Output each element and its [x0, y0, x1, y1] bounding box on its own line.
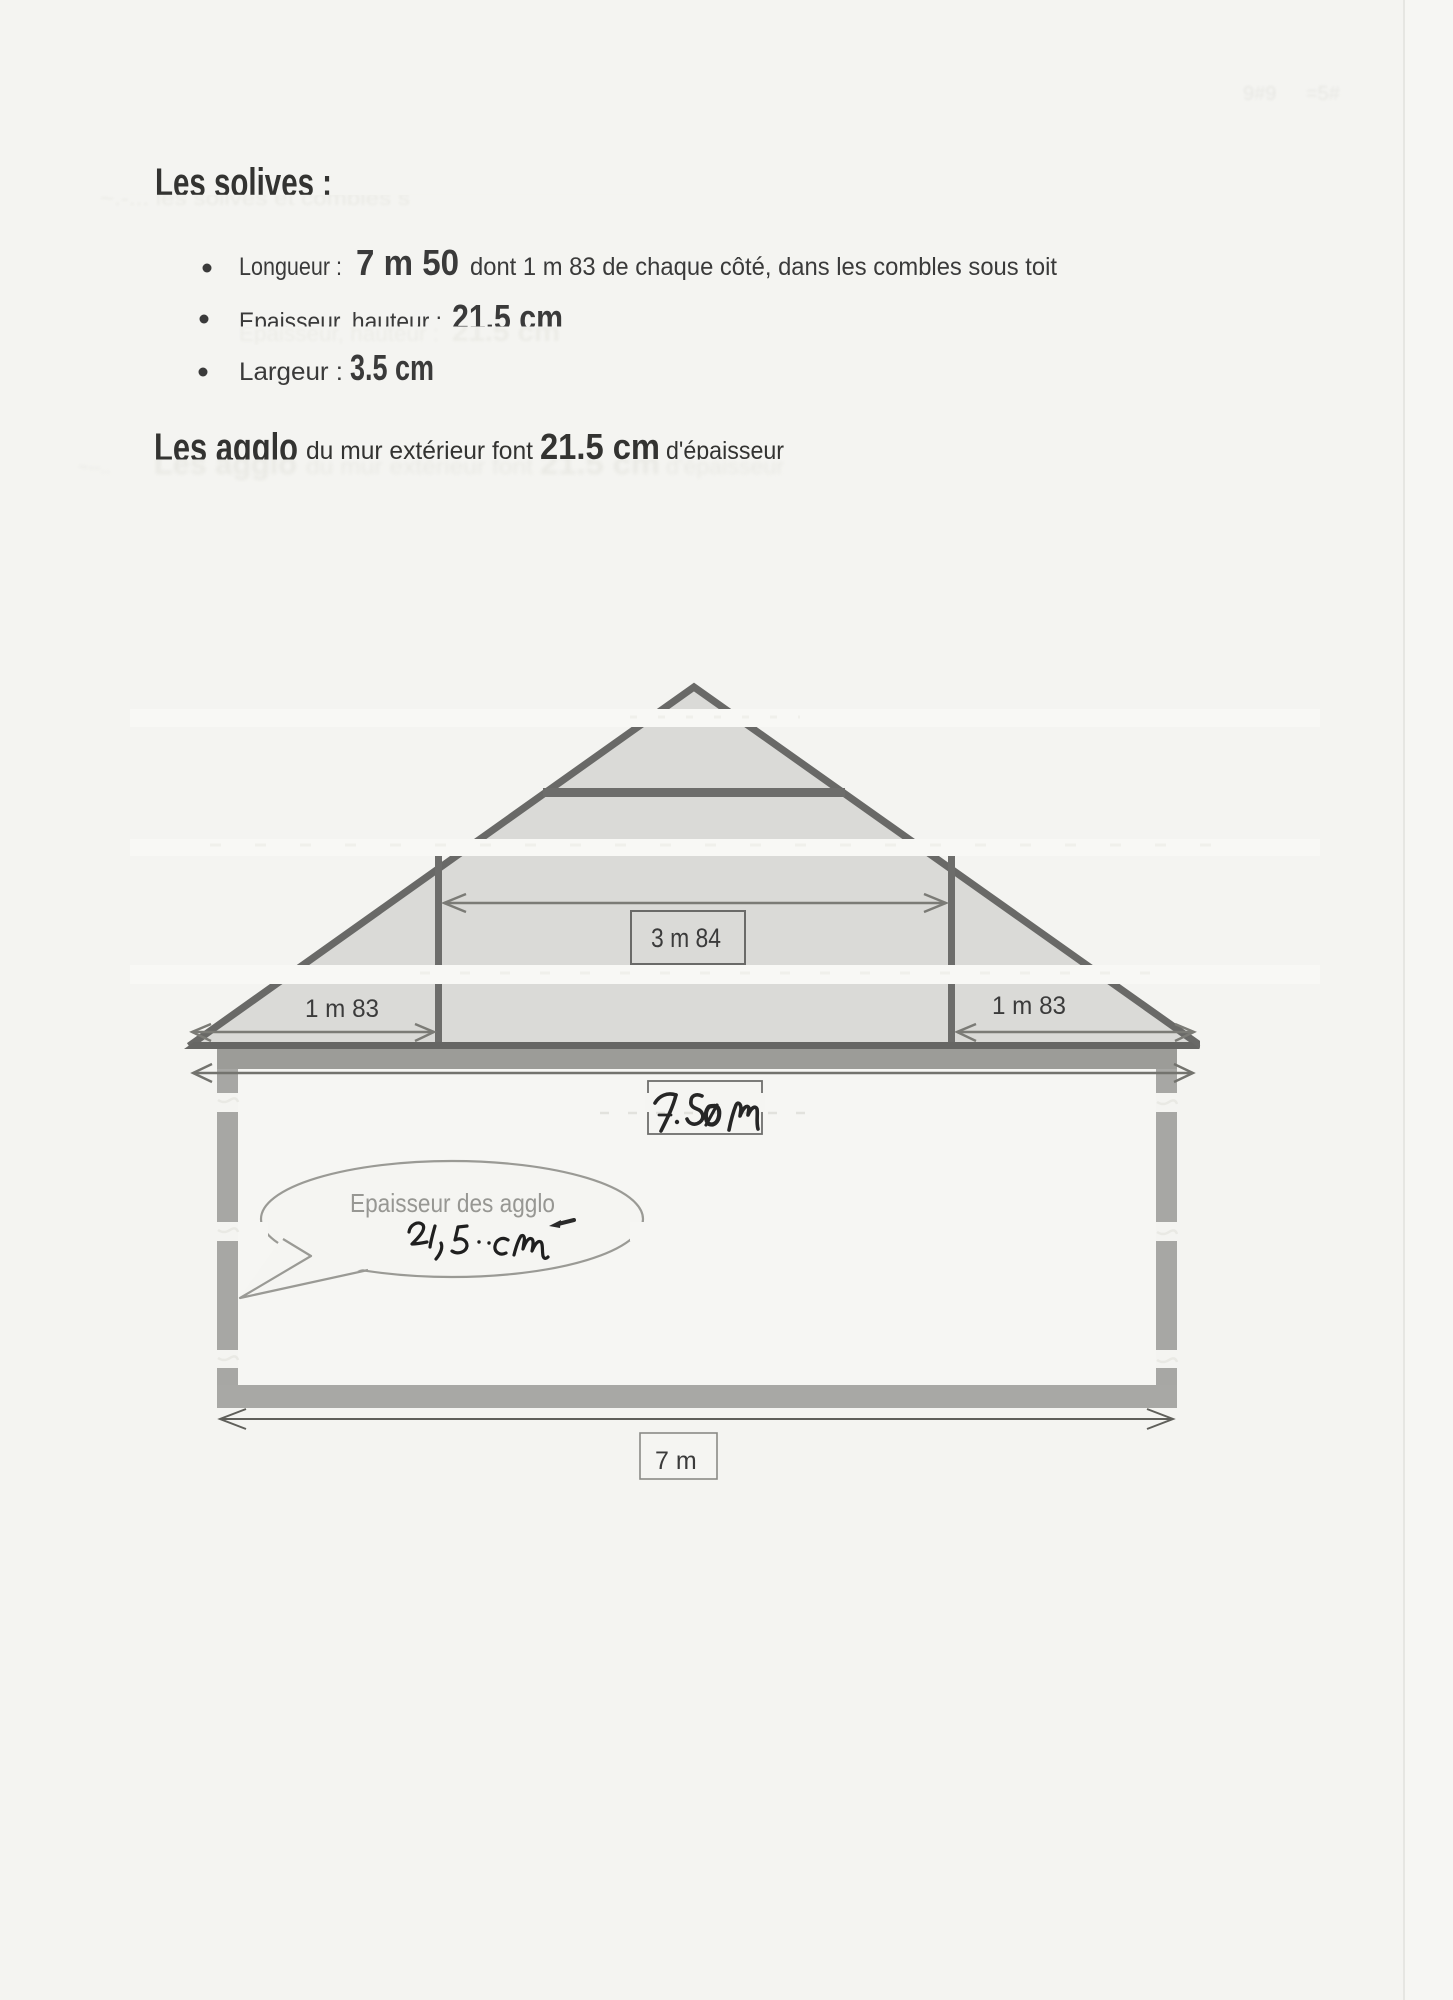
svg-text:7 m 50: 7 m 50 [356, 242, 459, 283]
svg-text:3 m 84: 3 m 84 [651, 923, 721, 953]
svg-text:7 m: 7 m [655, 1447, 697, 1475]
svg-text:3.5 cm: 3.5 cm [350, 347, 434, 388]
svg-text:dont 1 m 83 de chaque côté, d: dont 1 m 83 de chaque côté, dans les com… [470, 253, 1057, 281]
svg-text:Longueur :: Longueur : [239, 253, 342, 281]
svg-text:~--..: ~--.. [78, 457, 111, 477]
svg-text:Epaisseur des agglo: Epaisseur des agglo [350, 1188, 555, 1218]
svg-text:Largeur :: Largeur : [239, 358, 343, 386]
svg-text:=5#: =5# [1306, 83, 1341, 105]
svg-text:1 m 83: 1 m 83 [992, 992, 1066, 1020]
svg-text:9#9: 9#9 [1243, 83, 1276, 105]
svg-text:1 m 83: 1 m 83 [305, 995, 379, 1023]
